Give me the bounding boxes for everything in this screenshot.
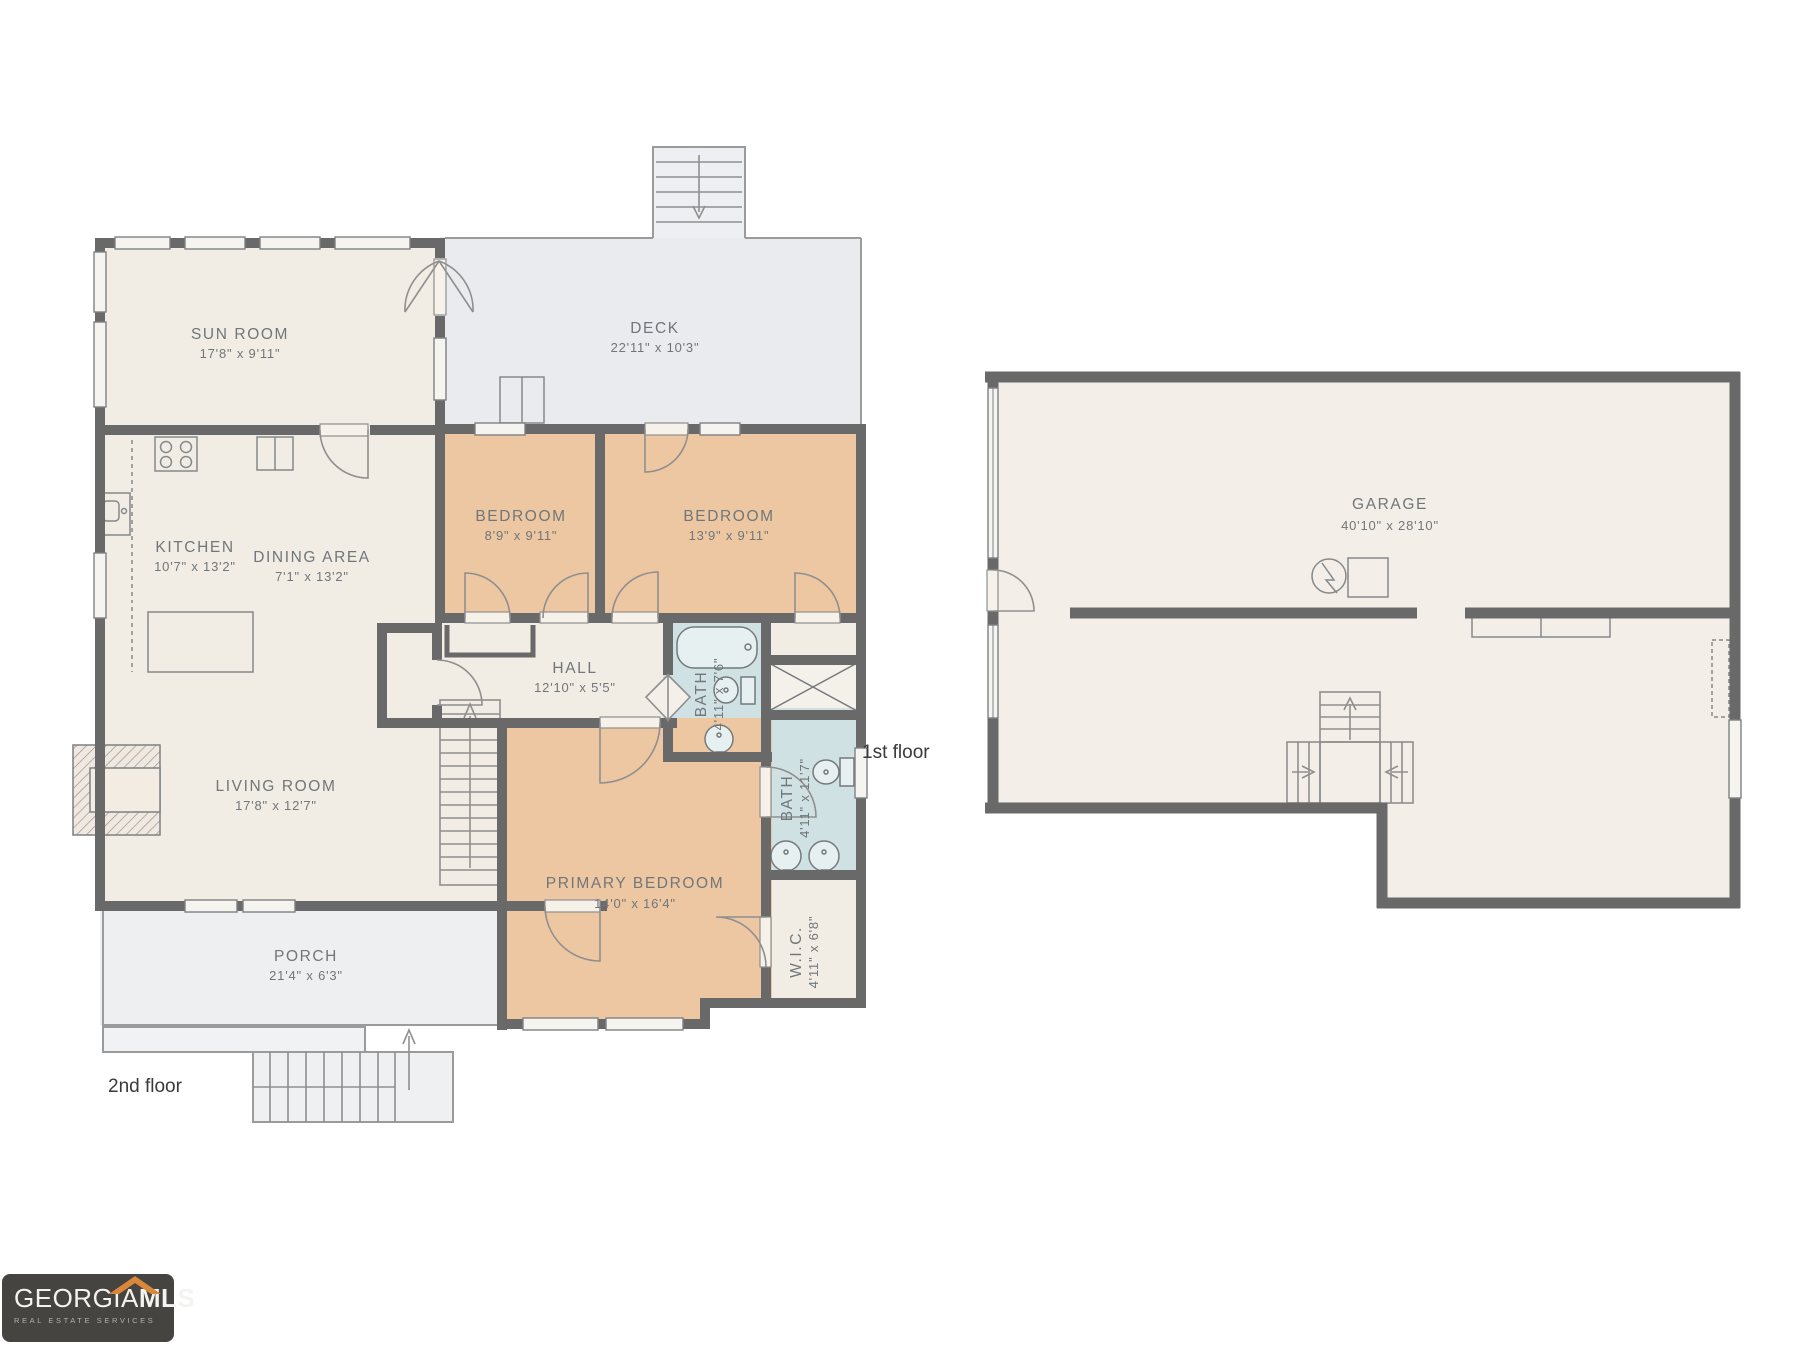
bedroom-mid-dims: 13'9" x 9'11": [689, 528, 770, 543]
first-floor-caption: 1st floor: [862, 742, 930, 764]
toilet-icon: [813, 760, 839, 784]
window: [335, 237, 410, 249]
door-panel: [540, 612, 588, 623]
wic-label-group: W.I.C. 4'11" x 6'8": [788, 916, 821, 989]
door-panel: [600, 717, 660, 728]
bedroom-mid-label: BEDROOM: [683, 508, 774, 525]
kitchen-dims: 10'7" x 13'2": [154, 559, 236, 574]
logo-brand-row: GEORGIAMLS: [14, 1283, 174, 1313]
bedroom-small-dims: 8'9" x 9'11": [485, 528, 558, 543]
exterior-landing-area: [103, 1027, 365, 1052]
window: [1729, 720, 1741, 798]
dining-label: DINING AREA: [253, 549, 371, 566]
second-floor-caption: 2nd floor: [108, 1076, 182, 1098]
porch-area: [100, 906, 502, 1025]
window: [434, 338, 446, 400]
floor-plan-canvas: SUN ROOM 17'8" x 9'11" DECK 22'11" x 10'…: [0, 0, 1800, 1350]
dining-dims: 7'1" x 13'2": [275, 569, 349, 584]
garage-dims: 40'10" x 28'10": [1341, 518, 1439, 533]
primary-label: PRIMARY BEDROOM: [546, 875, 724, 892]
door-panel: [612, 612, 658, 623]
primary-dims: 14'0" x 16'4": [594, 896, 676, 911]
roof-icon: [109, 1276, 171, 1294]
garage-area: [988, 377, 1740, 808]
window: [700, 423, 740, 435]
garage-extension-area: [1382, 808, 1740, 903]
window: [243, 900, 295, 912]
door-panel: [795, 612, 840, 623]
window: [94, 322, 106, 407]
garage-label: GARAGE: [1352, 496, 1428, 513]
door-panel: [465, 612, 510, 623]
bedroom-small-label: BEDROOM: [475, 508, 566, 525]
plan-notch: [710, 1008, 870, 1050]
window: [115, 237, 170, 249]
sink-icon: [771, 841, 801, 871]
bath-primary-label: BATH: [779, 775, 796, 822]
georgia-mls-logo: GEORGIAMLS REAL ESTATE SERVICES: [2, 1274, 174, 1342]
bath-hall-label: BATH: [693, 671, 710, 718]
kitchen-label: KITCHEN: [155, 539, 234, 556]
deck-dims: 22'11" x 10'3": [611, 340, 700, 355]
door-panel: [320, 424, 368, 436]
porch-dims: 21'4" x 6'3": [269, 968, 343, 983]
deck-label: DECK: [630, 320, 679, 337]
window: [185, 237, 245, 249]
sun-room-dims: 17'8" x 9'11": [200, 346, 281, 361]
room-fills-first-floor: [988, 377, 1740, 903]
window: [94, 252, 106, 312]
porch-label: PORCH: [274, 948, 338, 965]
window: [523, 1018, 598, 1030]
window: [185, 900, 237, 912]
door-panel: [987, 570, 998, 611]
sink-icon: [809, 841, 839, 871]
bath-hall-dims: 4'11" x 7'6": [711, 658, 726, 731]
window: [94, 553, 106, 618]
living-dims: 17'8" x 12'7": [235, 798, 317, 813]
window: [606, 1018, 683, 1030]
hall-label: HALL: [552, 660, 597, 677]
hall-dims: 12'10" x 5'5": [534, 680, 616, 695]
bath-primary-dims: 4'11" x 11'7": [797, 758, 812, 838]
door-panel: [645, 423, 688, 435]
primary-bedroom-area: [497, 718, 772, 1029]
fireplace: [73, 745, 160, 835]
sun-room-label: SUN ROOM: [191, 326, 289, 343]
logo-tagline: REAL ESTATE SERVICES: [14, 1316, 174, 1325]
window: [475, 423, 525, 435]
living-label: LIVING ROOM: [216, 778, 337, 795]
wic-label: W.I.C.: [788, 926, 805, 978]
door-panel: [545, 900, 600, 912]
window: [260, 237, 320, 249]
door-panel: [760, 767, 771, 817]
wic-dims: 4'11" x 6'8": [806, 916, 821, 989]
